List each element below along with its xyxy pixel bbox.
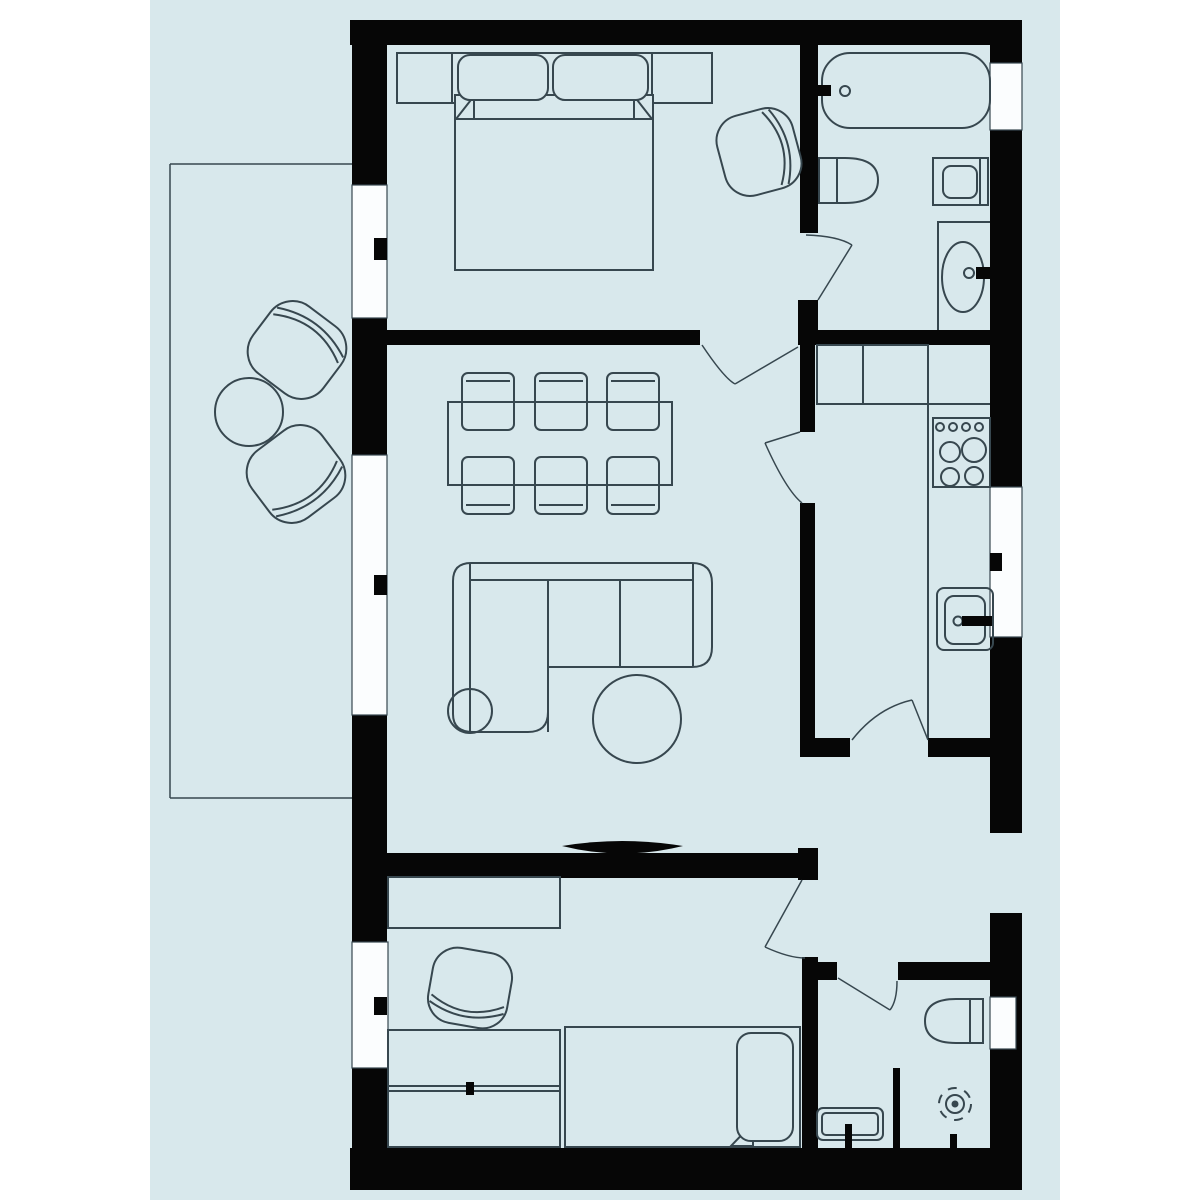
single-bed-pillow <box>737 1033 793 1141</box>
window-bedroom1-left <box>352 185 387 318</box>
wall-kitchen-bottom-left <box>800 738 850 757</box>
shower-drain-dot <box>952 1101 959 1108</box>
window-bathroom1-right-pane <box>990 63 1022 130</box>
wall-left-1 <box>352 20 387 185</box>
wall-kitchen-left-lower <box>800 503 815 757</box>
wall-left-4 <box>352 1068 388 1160</box>
wardrobe-bedroom2-handle <box>466 1082 474 1095</box>
bedroom2-armchair-body <box>424 944 516 1033</box>
niche-toilet-bathroom2 <box>990 997 1016 1049</box>
wall-livingroom-top <box>387 330 700 345</box>
wall-right-1 <box>990 20 1022 63</box>
apartment-floor-plan <box>0 0 1200 1200</box>
wall-kitchen-bottom-right <box>928 738 990 757</box>
window-livingroom-left <box>352 455 387 715</box>
double-bed <box>455 95 653 270</box>
window-bedroom1-left-mullion <box>374 238 387 260</box>
double-bed-pillow-2 <box>553 55 648 100</box>
wall-left-3 <box>352 715 387 942</box>
wall-bathroom1-bottom <box>815 330 990 345</box>
wall-right-2 <box>990 130 1022 487</box>
wall-livingroom-bottom-cap <box>798 848 818 880</box>
bathtub-faucet <box>815 85 831 96</box>
window-livingroom-left-mullion <box>374 575 387 595</box>
wall-right-3 <box>990 637 1022 833</box>
wall-left-2 <box>352 318 387 455</box>
window-bedroom2-left-mullion <box>374 997 387 1015</box>
window-kitchen-right-mullion <box>990 553 1002 571</box>
tv-stand <box>618 851 630 866</box>
wall-bathroom2-top-right <box>898 962 990 980</box>
wall-bedroom2-right <box>802 957 818 1148</box>
floorplan-page <box>0 0 1200 1200</box>
window-kitchen-right <box>990 487 1022 637</box>
window-bathroom1-right <box>990 63 1022 130</box>
wall-top <box>350 20 1022 45</box>
wall-livingroom-bottom <box>387 853 803 878</box>
kitchen-faucet <box>962 616 992 626</box>
wall-bedroom1-bathroom1 <box>800 45 818 233</box>
wall-bottom <box>350 1148 1022 1190</box>
bedroom2-armchair <box>424 944 516 1033</box>
wall-bathroom2-top-left <box>817 962 837 980</box>
window-bedroom2-left <box>352 942 388 1068</box>
vanity-faucet <box>976 267 992 279</box>
wall-bathroom2-partition <box>893 1068 900 1148</box>
shower-tap <box>950 1134 957 1148</box>
niche-toilet-bathroom2-pane <box>990 997 1016 1049</box>
double-bed-pillow-1 <box>458 55 548 100</box>
washbasin-bathroom2-tap <box>845 1124 852 1150</box>
wall-kitchen-left-upper <box>800 345 815 432</box>
